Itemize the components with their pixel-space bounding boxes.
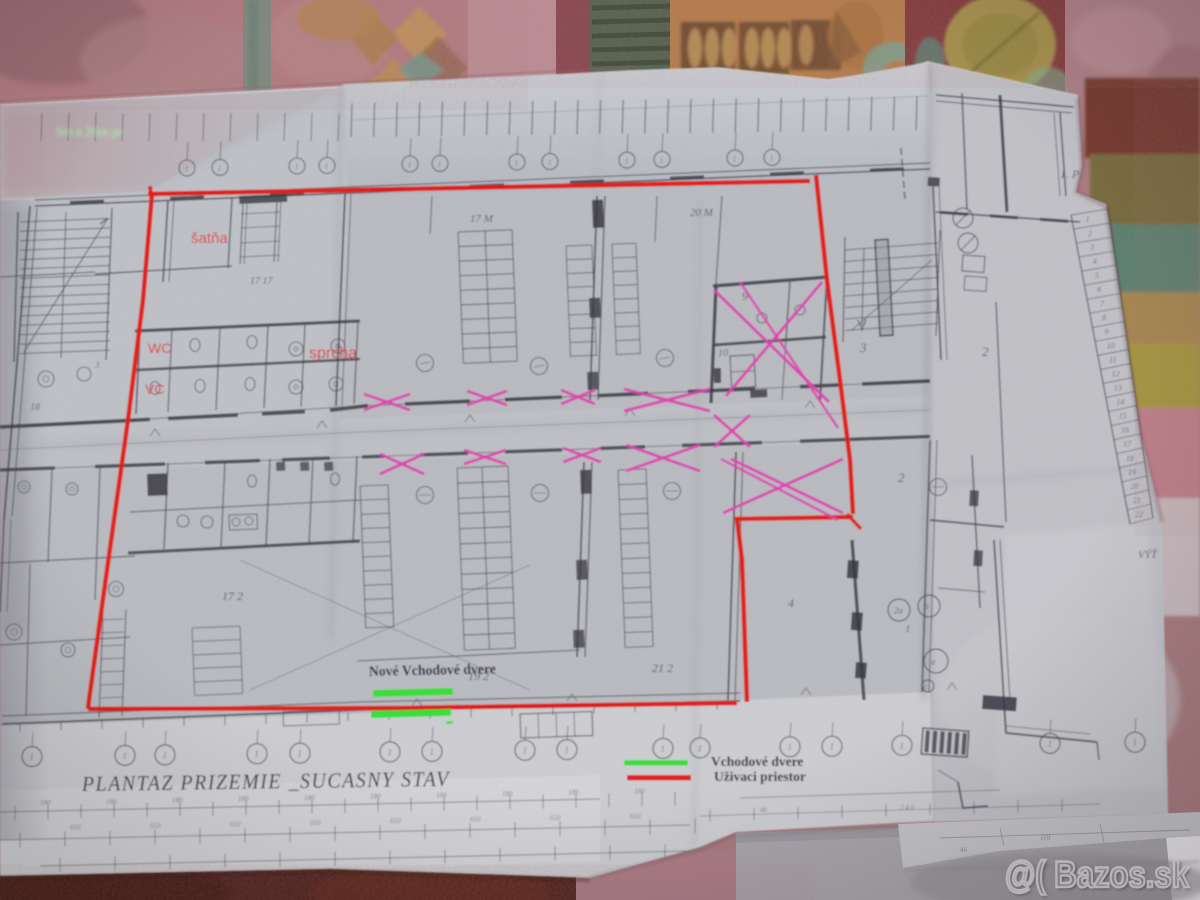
svg-text:@( Bazos.sk: @( Bazos.sk: [1005, 854, 1189, 895]
